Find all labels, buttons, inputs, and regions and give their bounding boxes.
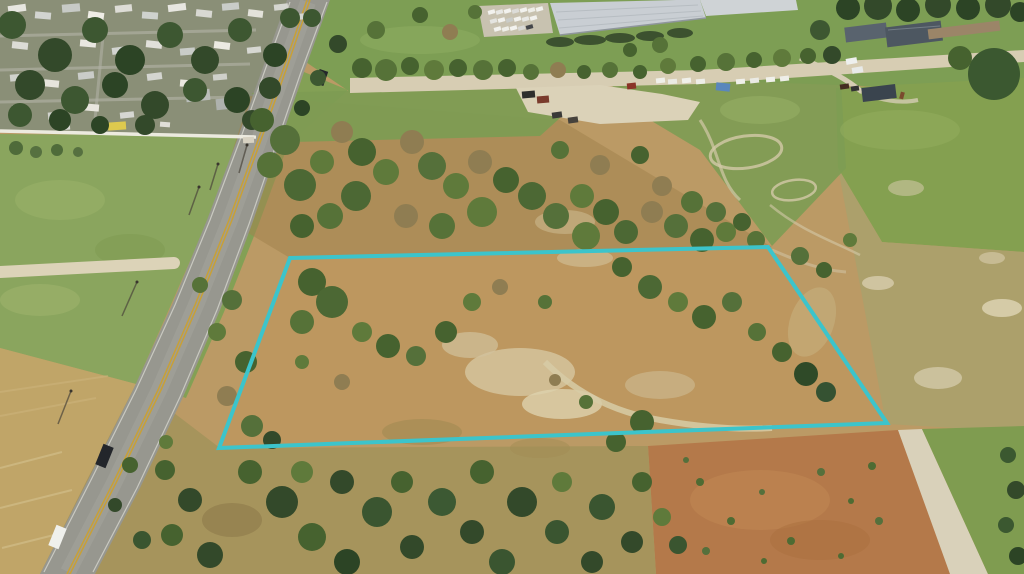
- trees-shape: [316, 286, 348, 318]
- trees-shape: [489, 549, 515, 574]
- hedge-row: [667, 28, 693, 38]
- trees-shape: [291, 461, 313, 483]
- trees-shape: [722, 292, 742, 312]
- yellow-building: [108, 121, 127, 130]
- trees-shape: [310, 70, 326, 86]
- trees-shape: [442, 24, 458, 40]
- trees-shape: [621, 531, 643, 553]
- sand-and-mottle-shape: [914, 367, 962, 389]
- palm-clump: [794, 362, 818, 386]
- trees-shape: [8, 103, 32, 127]
- trees-shape: [733, 213, 751, 231]
- trees-shape: [329, 35, 347, 53]
- white-camper: [736, 79, 745, 85]
- trees-shape: [102, 72, 128, 98]
- trees-shape: [581, 551, 603, 573]
- trees-shape: [406, 346, 426, 366]
- trees-shape: [400, 535, 424, 559]
- trees-shape: [823, 46, 841, 64]
- trees-shape: [551, 141, 569, 159]
- trees-shape: [178, 488, 202, 512]
- trees-shape: [222, 290, 242, 310]
- trees-shape: [224, 87, 250, 113]
- sand-and-mottle-shape: [625, 371, 695, 399]
- trees-shape: [49, 109, 71, 131]
- sand-and-mottle-shape: [982, 299, 1022, 317]
- trees-shape: [660, 58, 676, 74]
- trees-shape: [298, 523, 326, 551]
- trees-shape: [538, 295, 552, 309]
- trees-shape: [669, 536, 687, 554]
- mobile-home: [142, 11, 158, 19]
- trees-shape: [294, 100, 310, 116]
- trees-shape: [692, 305, 716, 329]
- trees-shape: [394, 204, 418, 228]
- trees-shape: [61, 86, 89, 114]
- trees-shape: [352, 322, 372, 342]
- trees-shape: [759, 489, 765, 495]
- trees-shape: [550, 62, 566, 78]
- trees-shape: [284, 169, 316, 201]
- utility-pole: [246, 144, 249, 147]
- trees-shape: [468, 150, 492, 174]
- trees-shape: [810, 20, 830, 40]
- white-camper: [780, 76, 789, 82]
- trees-shape: [290, 214, 314, 238]
- white-camper: [766, 77, 775, 83]
- trees-shape: [696, 478, 704, 486]
- trees-shape: [579, 395, 593, 409]
- mobile-home: [160, 122, 170, 128]
- aerial-photo: [0, 0, 1024, 574]
- trees-shape: [341, 181, 371, 211]
- sand-and-mottle-shape: [979, 252, 1005, 264]
- trees-shape: [470, 460, 494, 484]
- trees-shape: [589, 494, 615, 520]
- trees-shape: [623, 43, 637, 57]
- palm-tree: [30, 146, 42, 158]
- trees-shape: [290, 310, 314, 334]
- hedge-row: [605, 33, 635, 43]
- trees-shape: [352, 58, 372, 78]
- trees-shape: [280, 8, 300, 28]
- trees-shape: [791, 247, 809, 265]
- trees-shape: [473, 60, 493, 80]
- trees-shape: [317, 203, 343, 229]
- trees-shape: [652, 176, 672, 196]
- utility-pole: [136, 281, 139, 284]
- trees-shape: [192, 277, 208, 293]
- big-oak: [968, 48, 1020, 100]
- trees-shape: [816, 262, 832, 278]
- hedge-row: [574, 35, 606, 45]
- trees-shape: [208, 323, 226, 341]
- trees-shape: [716, 222, 736, 242]
- trees-shape: [141, 91, 169, 119]
- trees-shape: [295, 355, 309, 369]
- sand-and-mottle-shape: [720, 96, 800, 124]
- trees-shape: [443, 173, 469, 199]
- trees-shape: [572, 222, 600, 250]
- trees-shape: [428, 488, 456, 516]
- trees-shape: [468, 5, 482, 19]
- trees-shape: [492, 279, 508, 295]
- trees-shape: [602, 62, 618, 78]
- trees-shape: [543, 203, 569, 229]
- trees-shape: [507, 487, 537, 517]
- mobile-home: [35, 11, 52, 19]
- white-camper: [696, 79, 705, 85]
- trees-shape: [746, 52, 762, 68]
- mobile-home: [213, 73, 227, 80]
- maroon-truck: [537, 95, 550, 103]
- trees-shape: [838, 553, 844, 559]
- trees-shape: [875, 517, 883, 525]
- trees-shape: [706, 202, 726, 222]
- trees-shape: [638, 275, 662, 299]
- trees-shape: [348, 138, 376, 166]
- trees-shape: [593, 199, 619, 225]
- trees-shape: [681, 191, 703, 213]
- utility-pole: [70, 390, 73, 393]
- trees-shape: [652, 37, 668, 53]
- trees-shape: [772, 342, 792, 362]
- trees-shape: [545, 520, 569, 544]
- trees-shape: [257, 152, 283, 178]
- trees-shape: [668, 292, 688, 312]
- trees-shape: [228, 18, 252, 42]
- trees-shape: [690, 56, 706, 72]
- palm-tree: [73, 147, 83, 157]
- trees-shape: [761, 558, 767, 564]
- trees-shape: [334, 374, 350, 390]
- sand-and-mottle-shape: [862, 276, 894, 290]
- trees-shape: [717, 53, 735, 71]
- trees-shape: [1000, 447, 1016, 463]
- trees-shape: [334, 549, 360, 574]
- trees-shape: [463, 293, 481, 311]
- palm-tree: [51, 144, 63, 156]
- trees-shape: [266, 486, 298, 518]
- trees-shape: [157, 22, 183, 48]
- trees-shape: [135, 115, 155, 135]
- trees-shape: [400, 130, 424, 154]
- hedge-row: [546, 37, 574, 47]
- trees-shape: [115, 45, 145, 75]
- round-oak-in-parcel: [435, 321, 457, 343]
- trees-shape: [787, 537, 795, 545]
- white-camper: [668, 79, 677, 85]
- trees-shape: [998, 517, 1014, 533]
- red-truck: [627, 83, 637, 90]
- sand-and-mottle-shape: [202, 503, 262, 537]
- trees-shape: [429, 213, 455, 239]
- sand-and-mottle-shape: [888, 180, 924, 196]
- sand-and-mottle-shape: [0, 284, 80, 316]
- trees-shape: [91, 116, 109, 134]
- trees-shape: [653, 508, 671, 526]
- blue-tarp: [716, 82, 731, 91]
- trees-shape: [498, 59, 516, 77]
- mobile-home: [222, 2, 240, 10]
- trees-shape: [843, 233, 857, 247]
- palm-clump: [816, 382, 836, 402]
- trees-shape: [373, 159, 399, 185]
- aerial-photo-svg: [0, 0, 1024, 574]
- trees-shape: [263, 43, 287, 67]
- trees-shape: [612, 257, 632, 277]
- white-camper: [656, 78, 665, 84]
- trees-shape: [155, 460, 175, 480]
- trees-shape: [15, 70, 45, 100]
- trees-shape: [549, 374, 561, 386]
- utility-pole: [217, 163, 220, 166]
- trees-shape: [577, 65, 591, 79]
- trees-shape: [748, 323, 766, 341]
- trees-shape: [570, 184, 594, 208]
- sand-and-mottle-shape: [15, 180, 105, 220]
- trees-shape: [108, 498, 122, 512]
- trees-shape: [493, 167, 519, 193]
- trees-shape: [270, 125, 300, 155]
- trees-shape: [868, 462, 876, 470]
- trees-shape: [82, 17, 108, 43]
- trees-shape: [460, 520, 484, 544]
- trees-shape: [702, 547, 710, 555]
- palm-tree: [9, 141, 23, 155]
- culvert-pad: [243, 137, 254, 144]
- sand-and-mottle-shape: [840, 110, 960, 150]
- trees-shape: [159, 435, 173, 449]
- trees-shape: [632, 472, 652, 492]
- trees-shape: [197, 542, 223, 568]
- trees-shape: [633, 65, 647, 79]
- trees-shape: [817, 468, 825, 476]
- trees-shape: [310, 150, 334, 174]
- white-camper: [682, 78, 691, 84]
- trees-shape: [418, 152, 446, 180]
- trees-shape: [161, 524, 183, 546]
- trees-shape: [664, 214, 688, 238]
- trees-shape: [590, 155, 610, 175]
- trees-shape: [38, 38, 72, 72]
- trees-shape: [424, 60, 444, 80]
- trees-shape: [250, 108, 274, 132]
- trees-shape: [367, 21, 385, 39]
- trees-shape: [641, 201, 663, 223]
- dark-truck: [522, 90, 536, 98]
- trees-shape: [523, 64, 539, 80]
- trees-shape: [331, 121, 353, 143]
- trees-shape: [133, 531, 151, 549]
- trees-shape: [183, 78, 207, 102]
- trees-shape: [773, 49, 791, 67]
- trees-shape: [375, 59, 397, 81]
- trees-shape: [391, 471, 413, 493]
- trees-shape: [238, 460, 262, 484]
- trees-shape: [449, 59, 467, 77]
- trees-shape: [800, 48, 816, 64]
- trees-shape: [122, 457, 138, 473]
- trees-shape: [518, 182, 546, 210]
- sand-and-mottle-shape: [510, 438, 570, 458]
- trees-shape: [303, 9, 321, 27]
- trees-shape: [259, 77, 281, 99]
- trees-shape: [948, 46, 972, 70]
- trees-shape: [552, 472, 572, 492]
- trees-shape: [727, 517, 735, 525]
- trees-shape: [401, 57, 419, 75]
- trees-shape: [191, 46, 219, 74]
- trees-shape: [412, 7, 428, 23]
- trees-shape: [330, 470, 354, 494]
- trees-shape: [848, 498, 854, 504]
- trees-shape: [683, 457, 689, 463]
- utility-pole: [198, 186, 201, 189]
- trees-shape: [631, 146, 649, 164]
- mobile-home: [62, 3, 81, 13]
- trees-shape: [376, 334, 400, 358]
- trees-shape: [362, 497, 392, 527]
- trees-shape: [241, 415, 263, 437]
- trees-shape: [467, 197, 497, 227]
- trees-shape: [614, 220, 638, 244]
- sand-and-mottle-shape: [770, 520, 870, 560]
- white-camper: [750, 78, 759, 84]
